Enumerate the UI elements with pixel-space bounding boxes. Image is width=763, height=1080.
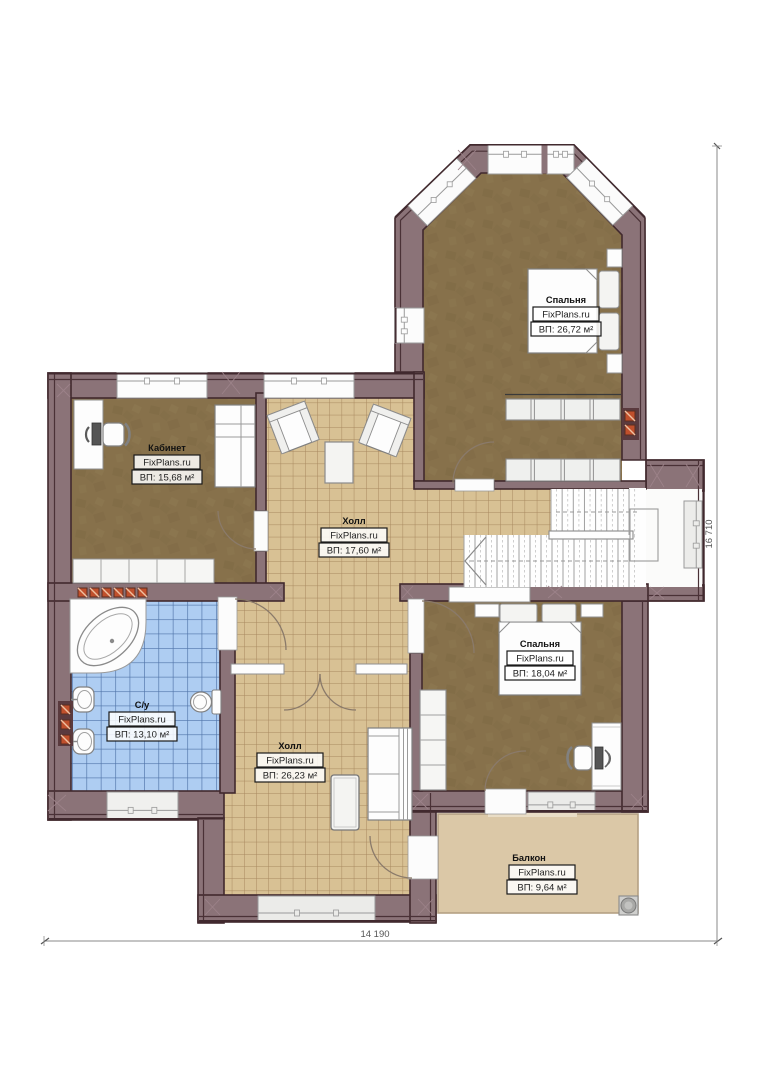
svg-text:FixPlans.ru: FixPlans.ru	[518, 868, 566, 879]
svg-text:Холл: Холл	[342, 516, 365, 526]
svg-text:Холл: Холл	[278, 741, 301, 751]
svg-text:FixPlans.ru: FixPlans.ru	[330, 531, 378, 542]
svg-text:14 190: 14 190	[360, 929, 389, 940]
svg-text:Кабинет: Кабинет	[148, 443, 186, 453]
svg-text:16 710: 16 710	[704, 519, 715, 548]
svg-text:ВП: 13,10 м²: ВП: 13,10 м²	[115, 730, 170, 741]
svg-text:FixPlans.ru: FixPlans.ru	[266, 756, 314, 767]
svg-text:Спальня: Спальня	[546, 295, 586, 305]
svg-text:FixPlans.ru: FixPlans.ru	[516, 654, 564, 665]
svg-text:ВП: 17,60 м²: ВП: 17,60 м²	[327, 546, 382, 557]
svg-text:ВП: 15,68 м²: ВП: 15,68 м²	[140, 473, 195, 484]
svg-text:FixPlans.ru: FixPlans.ru	[542, 310, 590, 321]
svg-text:FixPlans.ru: FixPlans.ru	[118, 715, 166, 726]
svg-text:ВП: 18,04 м²: ВП: 18,04 м²	[513, 669, 568, 680]
svg-text:Спальня: Спальня	[520, 639, 560, 649]
svg-text:ВП: 26,23 м²: ВП: 26,23 м²	[263, 771, 318, 782]
svg-text:Балкон: Балкон	[512, 853, 546, 863]
svg-text:FixPlans.ru: FixPlans.ru	[143, 458, 191, 469]
svg-text:С/у: С/у	[135, 700, 150, 710]
svg-text:ВП: 26,72 м²: ВП: 26,72 м²	[539, 325, 594, 336]
svg-text:ВП: 9,64 м²: ВП: 9,64 м²	[517, 883, 566, 894]
